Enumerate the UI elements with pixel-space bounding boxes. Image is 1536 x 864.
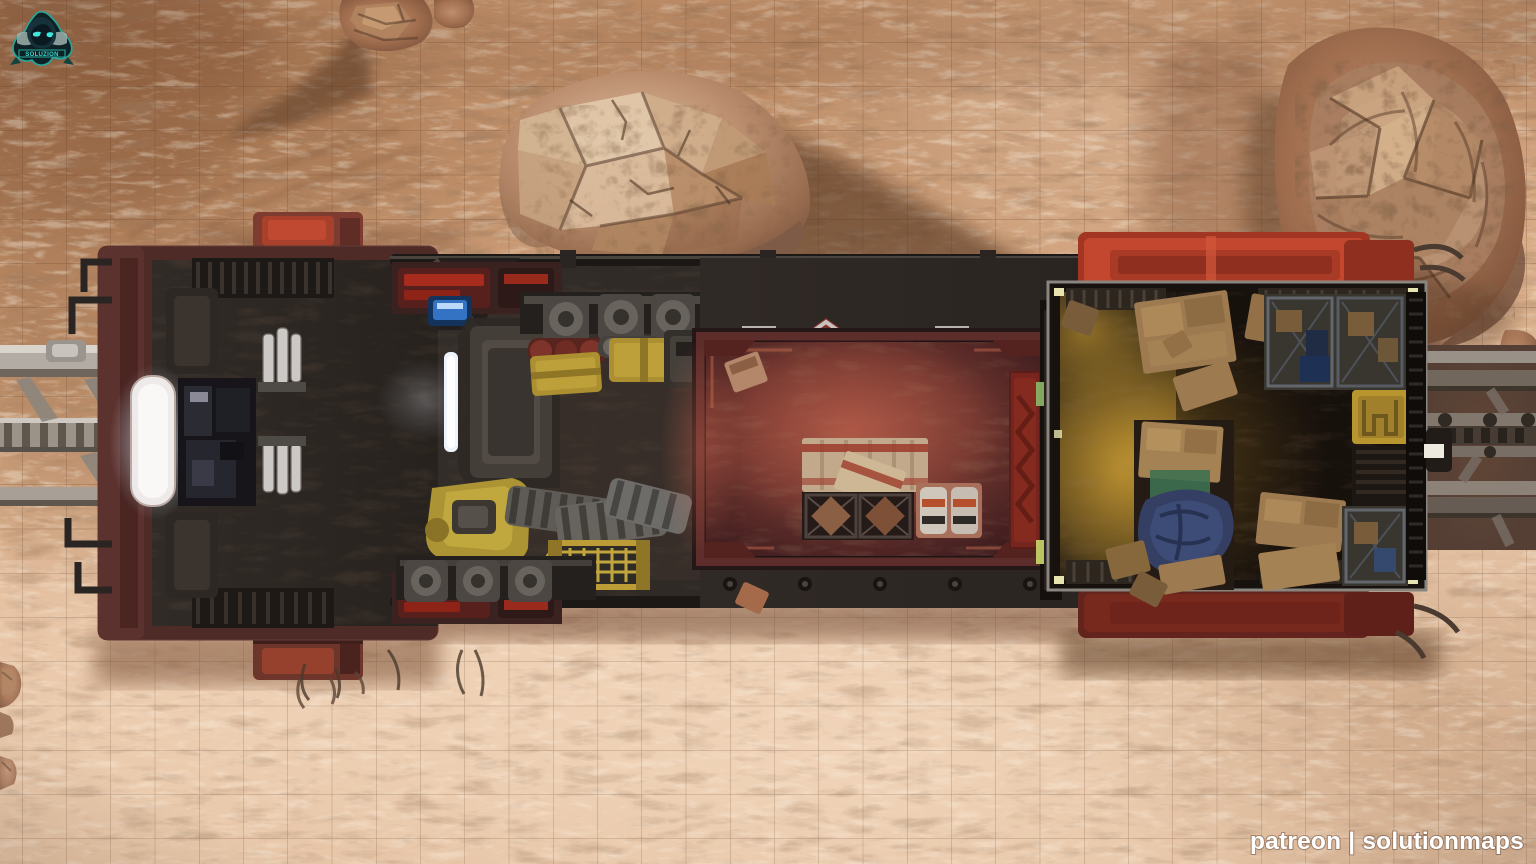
svg-text:patreon | solutionmaps: patreon | solutionmaps [1250, 828, 1524, 855]
svg-text:SOLUZION: SOLUZION [25, 52, 58, 58]
